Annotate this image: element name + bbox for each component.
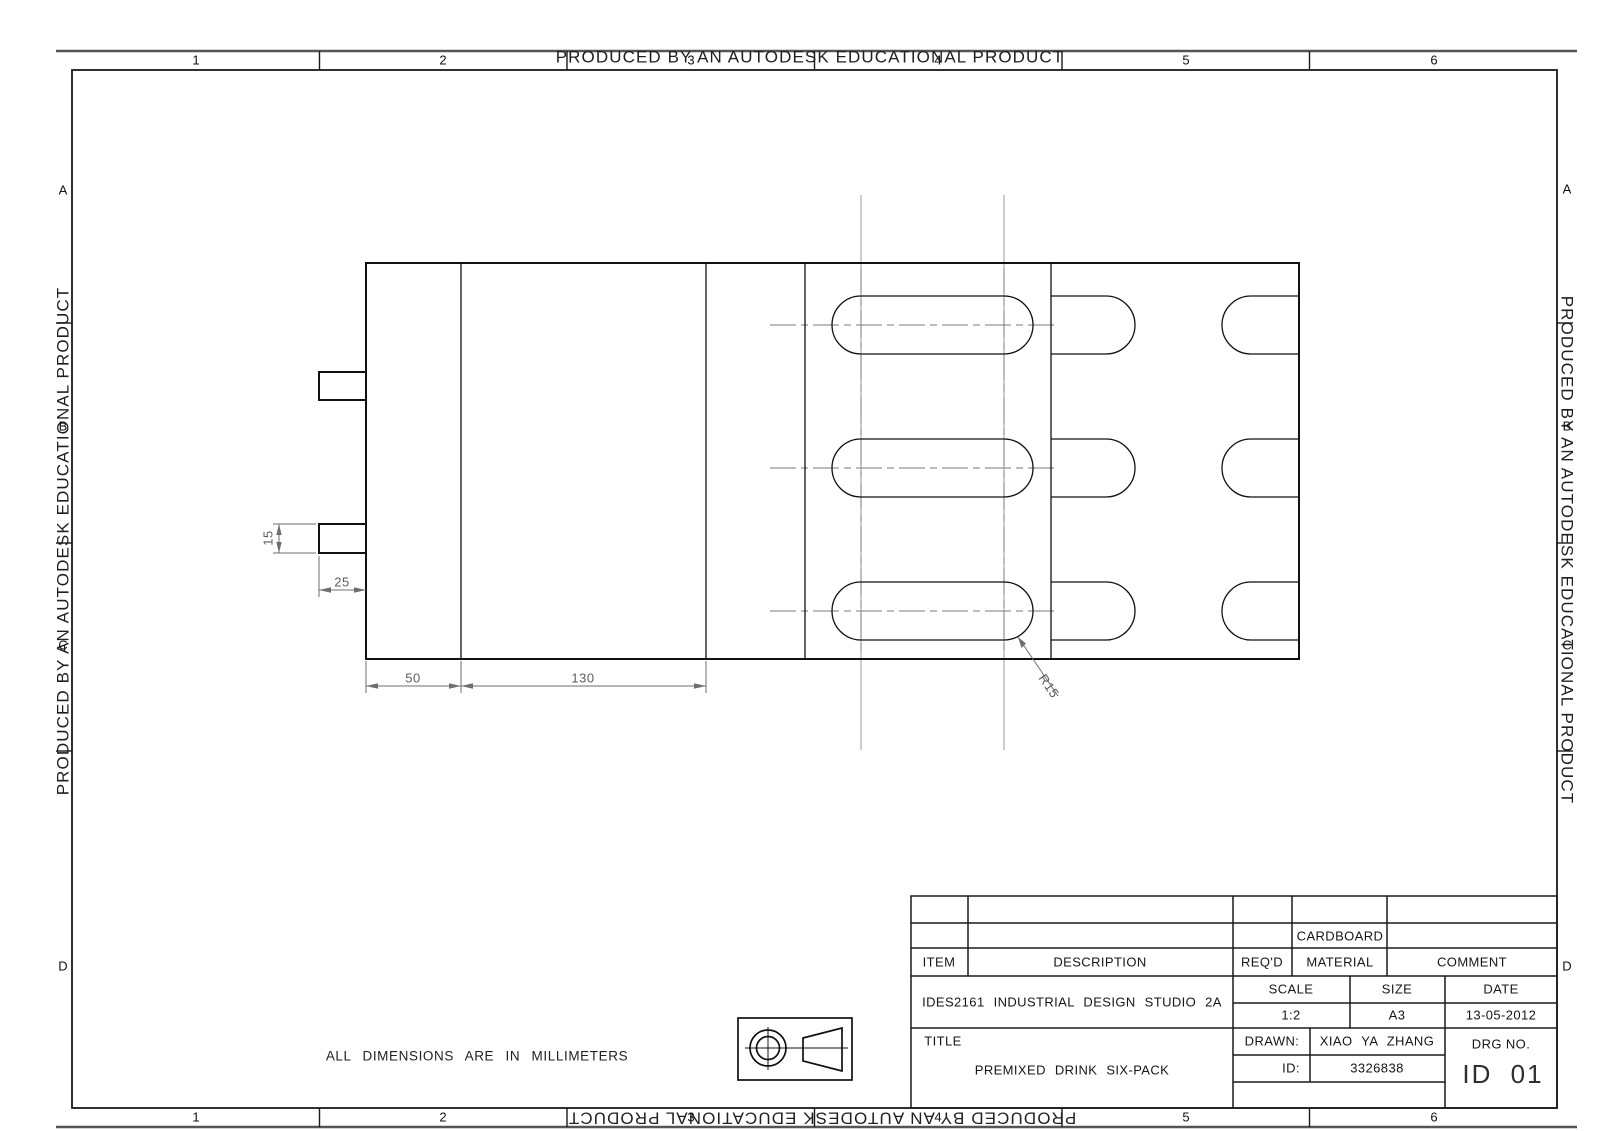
zone-col-4-top: 4 xyxy=(934,54,941,67)
dimensions-note: ALL DIMENSIONS ARE IN MILLIMETERS xyxy=(326,1049,628,1063)
zone-row-b-right: B xyxy=(1563,420,1572,433)
description-header: DESCRIPTION xyxy=(1053,956,1146,969)
drawn-value: XIAO YA ZHANG xyxy=(1320,1035,1434,1048)
title-label: TITLE xyxy=(924,1035,961,1048)
dim-50: 50 xyxy=(405,672,420,685)
watermark-bottom: PRODUCED BY AN AUTODESK EDUCATIONAL PROD… xyxy=(568,1110,1077,1127)
zone-col-3-top: 3 xyxy=(687,54,694,67)
item-header: ITEM xyxy=(923,956,956,969)
zone-row-b-left: B xyxy=(59,420,68,433)
dim-25: 25 xyxy=(334,576,349,589)
projection-symbol xyxy=(738,1018,852,1080)
zone-col-1-top: 1 xyxy=(192,54,199,67)
watermark-right: PRODUCED BY AN AUTODESK EDUCATIONAL PROD… xyxy=(1559,296,1576,805)
lower-tab xyxy=(319,524,366,553)
zone-row-a-right: A xyxy=(1563,183,1572,196)
id-label: ID: xyxy=(1282,1062,1300,1075)
size-label: SIZE xyxy=(1382,983,1413,996)
id-value: 3326838 xyxy=(1350,1062,1403,1075)
zone-col-2-top: 2 xyxy=(439,54,446,67)
upper-tab xyxy=(319,372,366,400)
date-label: DATE xyxy=(1483,983,1518,996)
dim-15: 15 xyxy=(262,530,275,545)
zone-col-3-bottom: 3 xyxy=(687,1111,694,1124)
dim-130: 130 xyxy=(571,672,594,685)
material-header: MATERIAL xyxy=(1306,956,1373,969)
zone-row-c-right: C xyxy=(1562,639,1571,652)
date-value: 13-05-2012 xyxy=(1466,1009,1537,1022)
flat-pattern xyxy=(319,263,1299,659)
centerlines xyxy=(770,195,1058,750)
size-value: A3 xyxy=(1389,1009,1406,1022)
course-name: IDES2161 INDUSTRIAL DESIGN STUDIO 2A xyxy=(922,996,1222,1009)
drg-no-value: ID 01 xyxy=(1462,1061,1543,1087)
reqd-header: REQ'D xyxy=(1241,956,1283,969)
drg-no-label: DRG NO. xyxy=(1472,1038,1530,1051)
zone-row-d-right: D xyxy=(1562,960,1571,973)
zone-col-6-top: 6 xyxy=(1430,54,1437,67)
zone-col-5-top: 5 xyxy=(1182,54,1189,67)
zone-row-d-left: D xyxy=(58,960,67,973)
zone-col-5-bottom: 5 xyxy=(1182,1111,1189,1124)
watermark-left: PRODUCED BY AN AUTODESK EDUCATIONAL PROD… xyxy=(55,287,72,796)
zone-col-1-bottom: 1 xyxy=(192,1111,199,1124)
watermark-top: PRODUCED BY AN AUTODESK EDUCATIONAL PROD… xyxy=(556,49,1065,66)
scale-label: SCALE xyxy=(1269,983,1314,996)
zone-col-2-bottom: 2 xyxy=(439,1111,446,1124)
material-value: CARDBOARD xyxy=(1297,930,1384,943)
zone-col-4-bottom: 4 xyxy=(934,1111,941,1124)
zone-row-c-left: C xyxy=(58,639,67,652)
comment-header: COMMENT xyxy=(1437,956,1507,969)
scale-value: 1:2 xyxy=(1281,1009,1300,1022)
zone-row-a-left: A xyxy=(59,184,68,197)
drawing-sheet: PRODUCED BY AN AUTODESK EDUCATIONAL PROD… xyxy=(0,0,1600,1131)
drawn-label: DRAWN: xyxy=(1245,1035,1300,1048)
dimension-annotations xyxy=(273,524,1058,696)
title-value: PREMIXED DRINK SIX-PACK xyxy=(975,1064,1170,1077)
zone-col-6-bottom: 6 xyxy=(1430,1111,1437,1124)
